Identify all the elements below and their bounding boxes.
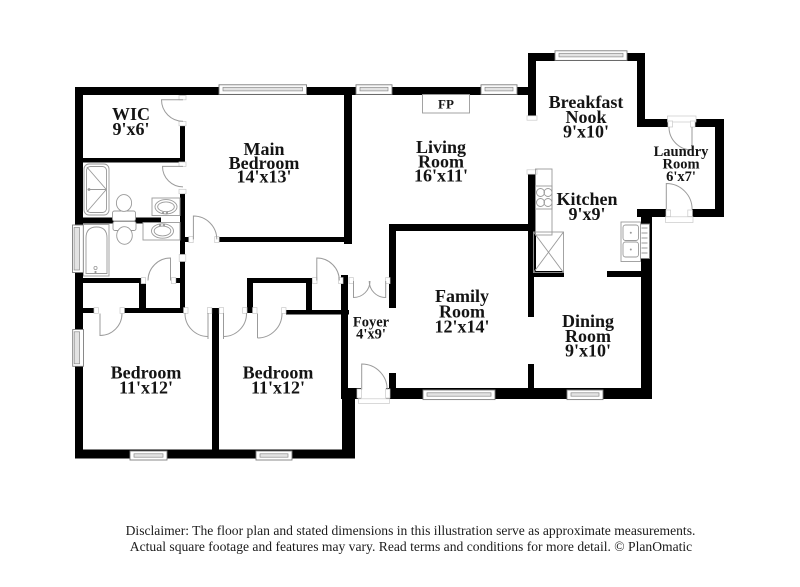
svg-text:Actual square footage and feat: Actual square footage and features may v… bbox=[130, 539, 692, 554]
svg-text:FP: FP bbox=[438, 97, 454, 112]
svg-text:9'x9': 9'x9' bbox=[568, 204, 605, 224]
svg-text:11'x12': 11'x12' bbox=[119, 378, 173, 398]
svg-text:6'x7': 6'x7' bbox=[666, 169, 696, 185]
svg-text:16'x11': 16'x11' bbox=[414, 166, 468, 186]
svg-text:9'x10': 9'x10' bbox=[563, 122, 609, 142]
svg-text:9'x10': 9'x10' bbox=[565, 341, 611, 361]
svg-text:Disclaimer: The floor plan and: Disclaimer: The floor plan and stated di… bbox=[126, 523, 696, 538]
svg-text:14'x13': 14'x13' bbox=[236, 167, 291, 187]
svg-text:11'x12': 11'x12' bbox=[251, 378, 305, 398]
svg-text:4'x9': 4'x9' bbox=[356, 327, 386, 343]
svg-text:9'x6': 9'x6' bbox=[112, 119, 149, 139]
svg-text:12'x14': 12'x14' bbox=[434, 317, 489, 337]
